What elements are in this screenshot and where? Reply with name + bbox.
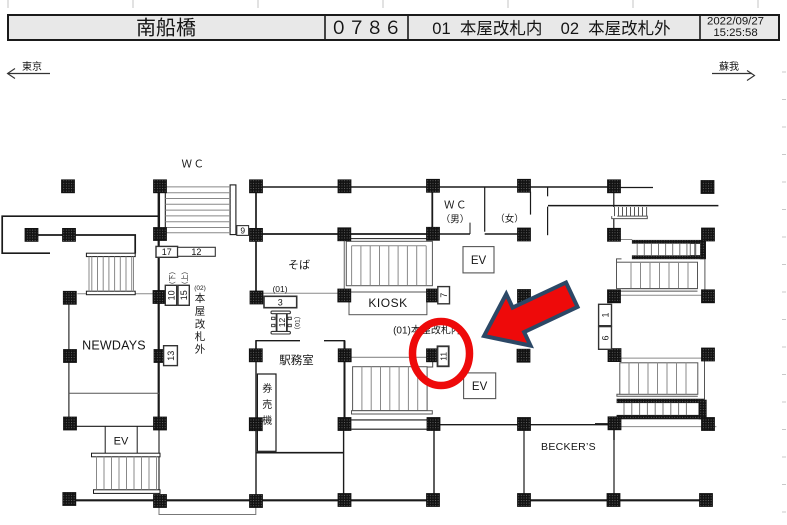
svg-text:売: 売 — [262, 398, 272, 411]
svg-text:EV: EV — [471, 255, 487, 267]
svg-text:11: 11 — [438, 352, 448, 361]
svg-text:機: 機 — [262, 414, 272, 427]
svg-text:駅務室: 駅務室 — [279, 353, 314, 367]
svg-text:KIOSK: KIOSK — [368, 296, 407, 310]
svg-text:15: 15 — [179, 290, 189, 300]
svg-text:17: 17 — [162, 247, 172, 257]
svg-text:9: 9 — [240, 225, 245, 235]
svg-text:NEWDAYS: NEWDAYS — [82, 339, 146, 353]
svg-text:本: 本 — [195, 292, 206, 305]
svg-text:（女）: （女） — [495, 213, 524, 225]
svg-text:EV: EV — [114, 436, 129, 448]
svg-text:01 本屋改札内 02 本屋改札外: 01 本屋改札内 02 本屋改札外 — [432, 19, 670, 38]
svg-text:券: 券 — [262, 382, 272, 395]
svg-text:(01): (01) — [272, 284, 287, 294]
svg-text:13: 13 — [166, 351, 176, 361]
svg-text:BECKER’S: BECKER’S — [541, 441, 596, 453]
svg-text:15:25:58: 15:25:58 — [713, 27, 757, 39]
svg-text:（01）: （01） — [293, 312, 301, 333]
svg-text:3: 3 — [278, 297, 283, 307]
svg-text:南船橋: 南船橋 — [136, 17, 196, 40]
svg-text:ＷＣ: ＷＣ — [444, 200, 468, 212]
svg-text:改: 改 — [195, 318, 206, 331]
svg-text:（男）: （男） — [441, 214, 470, 226]
svg-text:12: 12 — [191, 247, 201, 257]
svg-text:蘇我: 蘇我 — [719, 60, 739, 73]
svg-text:屋: 屋 — [195, 306, 206, 318]
svg-text:札: 札 — [195, 330, 206, 343]
svg-text:東京: 東京 — [22, 60, 42, 73]
svg-text:12: 12 — [277, 318, 287, 328]
svg-text:０７８６: ０７８６ — [330, 18, 402, 38]
svg-text:外: 外 — [195, 344, 206, 356]
svg-text:2022/09/27: 2022/09/27 — [707, 16, 764, 28]
svg-text:そば: そば — [288, 259, 310, 272]
svg-text:7: 7 — [439, 293, 449, 298]
svg-text:1: 1 — [600, 312, 610, 317]
svg-text:EV: EV — [472, 381, 488, 393]
svg-text:(02): (02) — [194, 285, 206, 292]
svg-text:10: 10 — [166, 290, 176, 300]
svg-text:6: 6 — [600, 335, 610, 340]
svg-text:ＷＣ: ＷＣ — [182, 159, 206, 171]
